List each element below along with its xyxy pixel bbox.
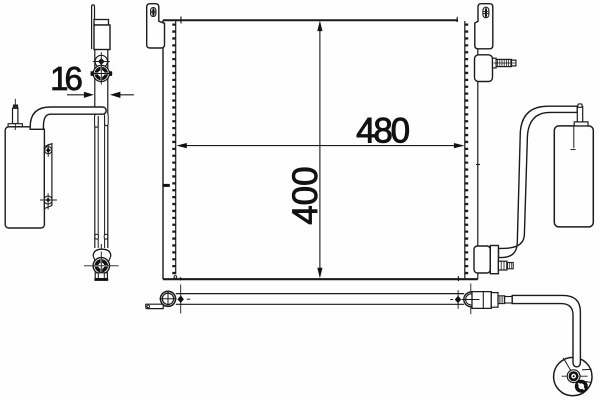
svg-text:400: 400 <box>286 166 325 224</box>
svg-text:16: 16 <box>50 60 81 97</box>
svg-text:480: 480 <box>356 112 410 151</box>
